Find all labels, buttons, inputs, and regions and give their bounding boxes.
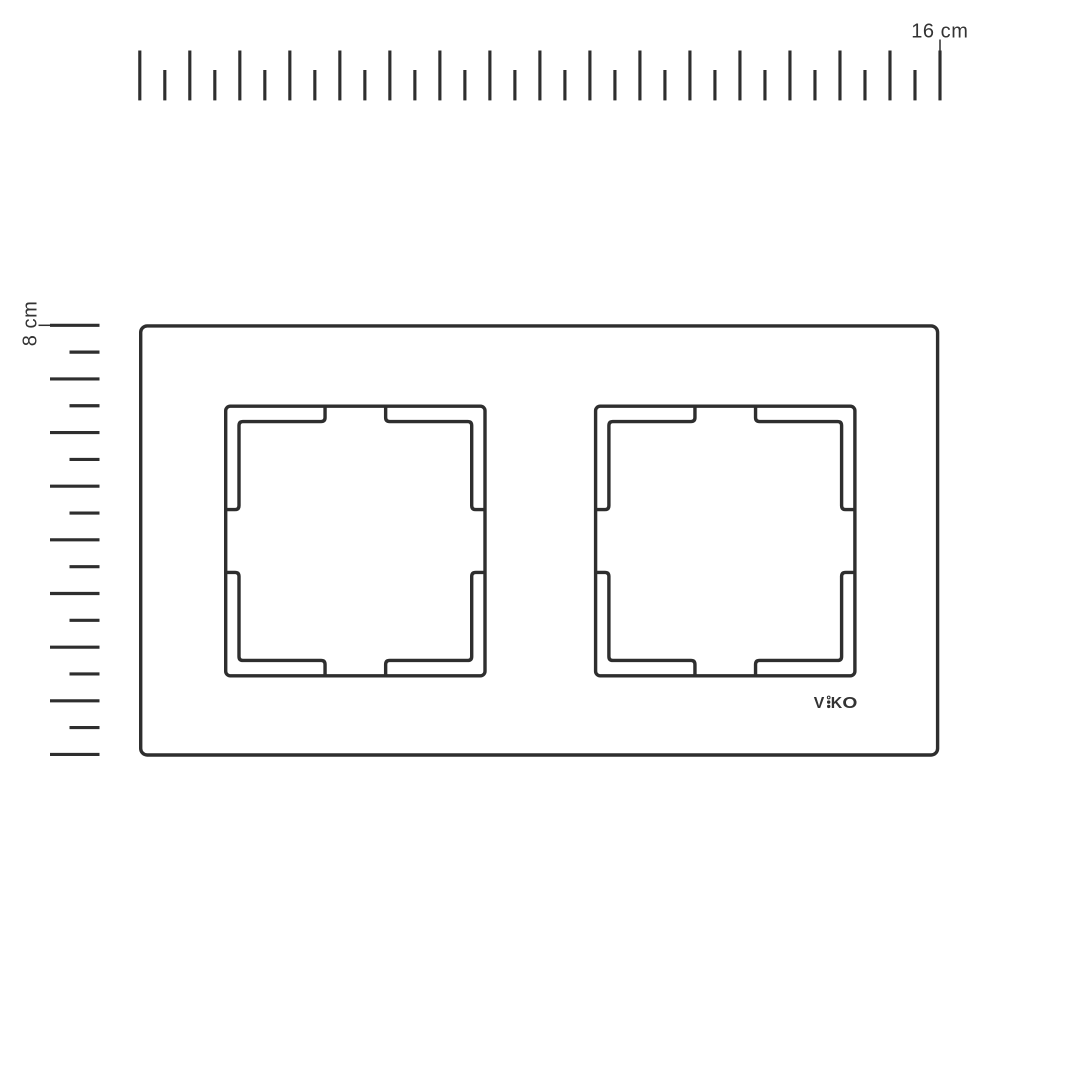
svg-text:K: K [831,695,843,712]
svg-text:O: O [842,694,857,712]
svg-text:16 cm: 16 cm [911,21,968,43]
svg-text:V: V [814,695,825,712]
svg-text:8 cm: 8 cm [20,301,42,347]
